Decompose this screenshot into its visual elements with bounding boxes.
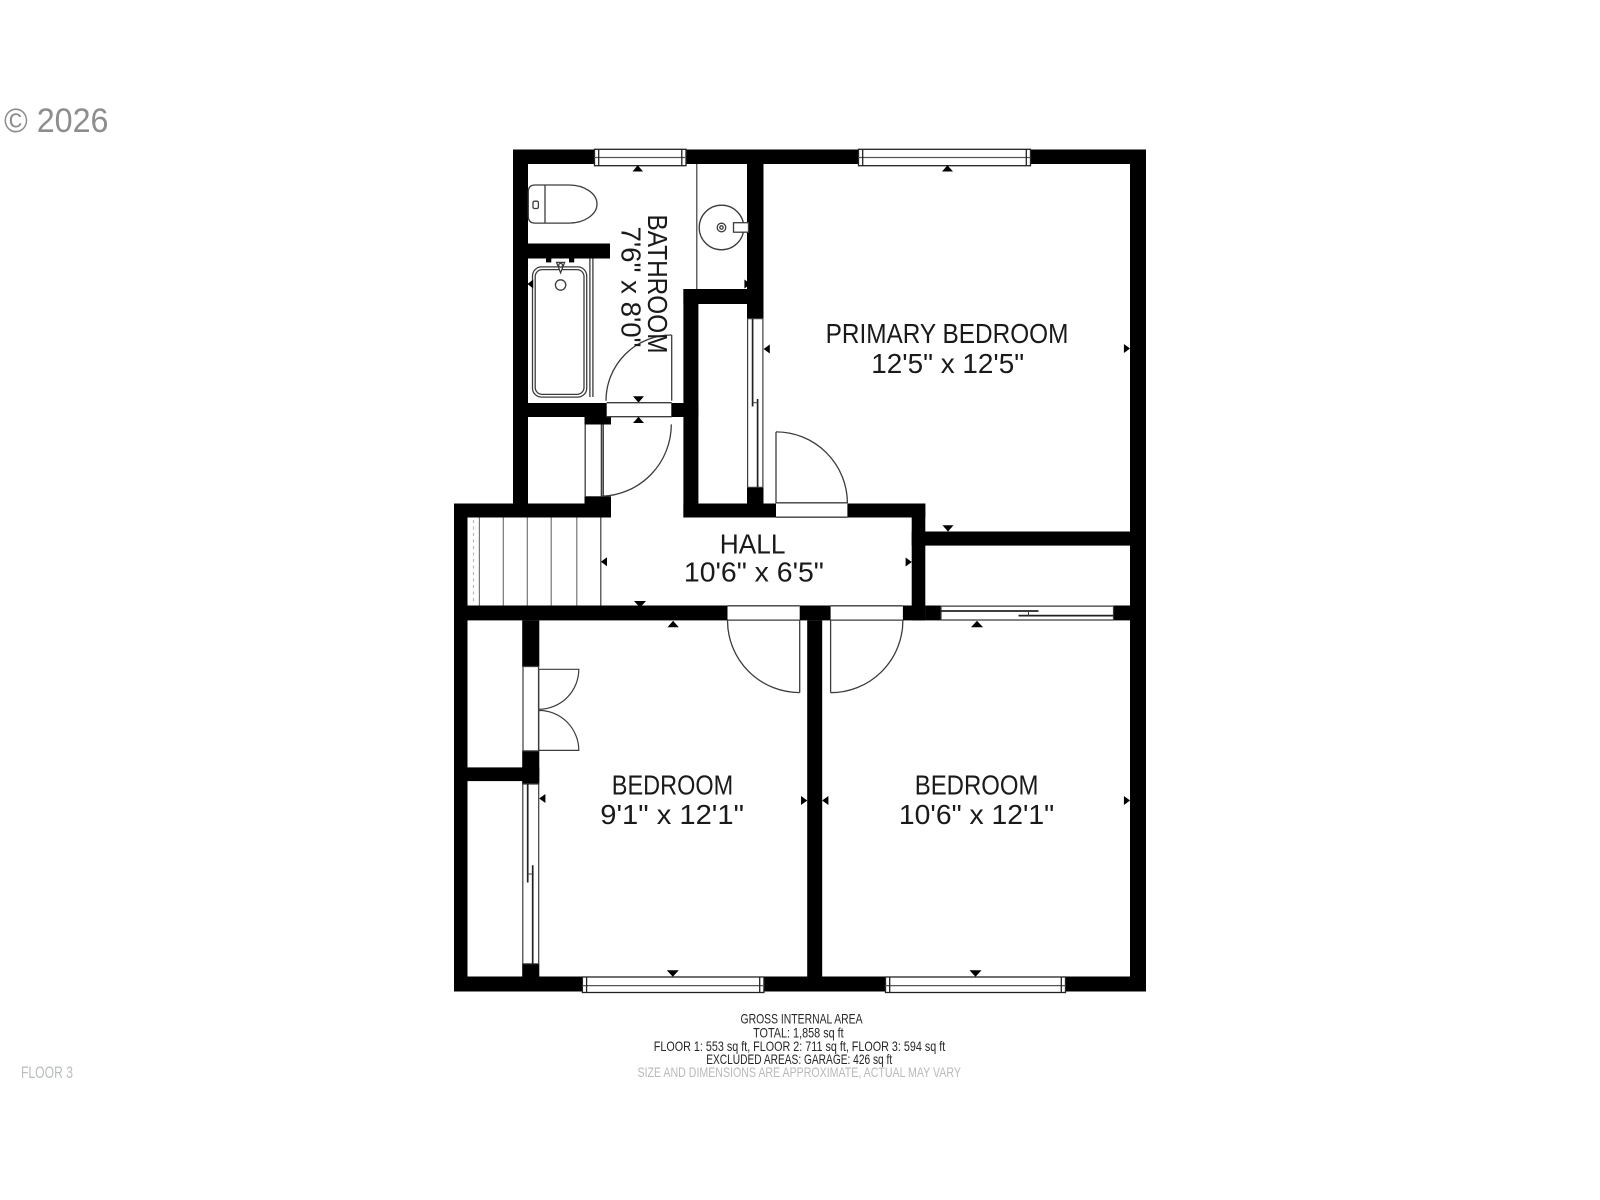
svg-text:FLOOR 3: FLOOR 3 (21, 1063, 73, 1082)
svg-text:BEDROOM: BEDROOM (612, 770, 733, 801)
svg-text:7'6" x 8'0": 7'6" x 8'0" (615, 227, 646, 348)
svg-text:BEDROOM: BEDROOM (915, 770, 1039, 801)
svg-text:10'6" x 6'5": 10'6" x 6'5" (684, 556, 824, 587)
svg-text:© 2026: © 2026 (4, 102, 109, 140)
svg-text:12'5" x 12'5": 12'5" x 12'5" (871, 348, 1024, 379)
svg-text:HALL: HALL (720, 528, 786, 559)
svg-text:GROSS INTERNAL AREA: GROSS INTERNAL AREA (741, 1011, 864, 1026)
svg-text:9'1" x 12'1": 9'1" x 12'1" (600, 799, 744, 830)
svg-text:SIZE AND DIMENSIONS ARE APPROX: SIZE AND DIMENSIONS ARE APPROXIMATE, ACT… (638, 1065, 961, 1080)
svg-text:PRIMARY BEDROOM: PRIMARY BEDROOM (826, 318, 1069, 349)
svg-text:10'6" x 12'1": 10'6" x 12'1" (899, 799, 1054, 830)
